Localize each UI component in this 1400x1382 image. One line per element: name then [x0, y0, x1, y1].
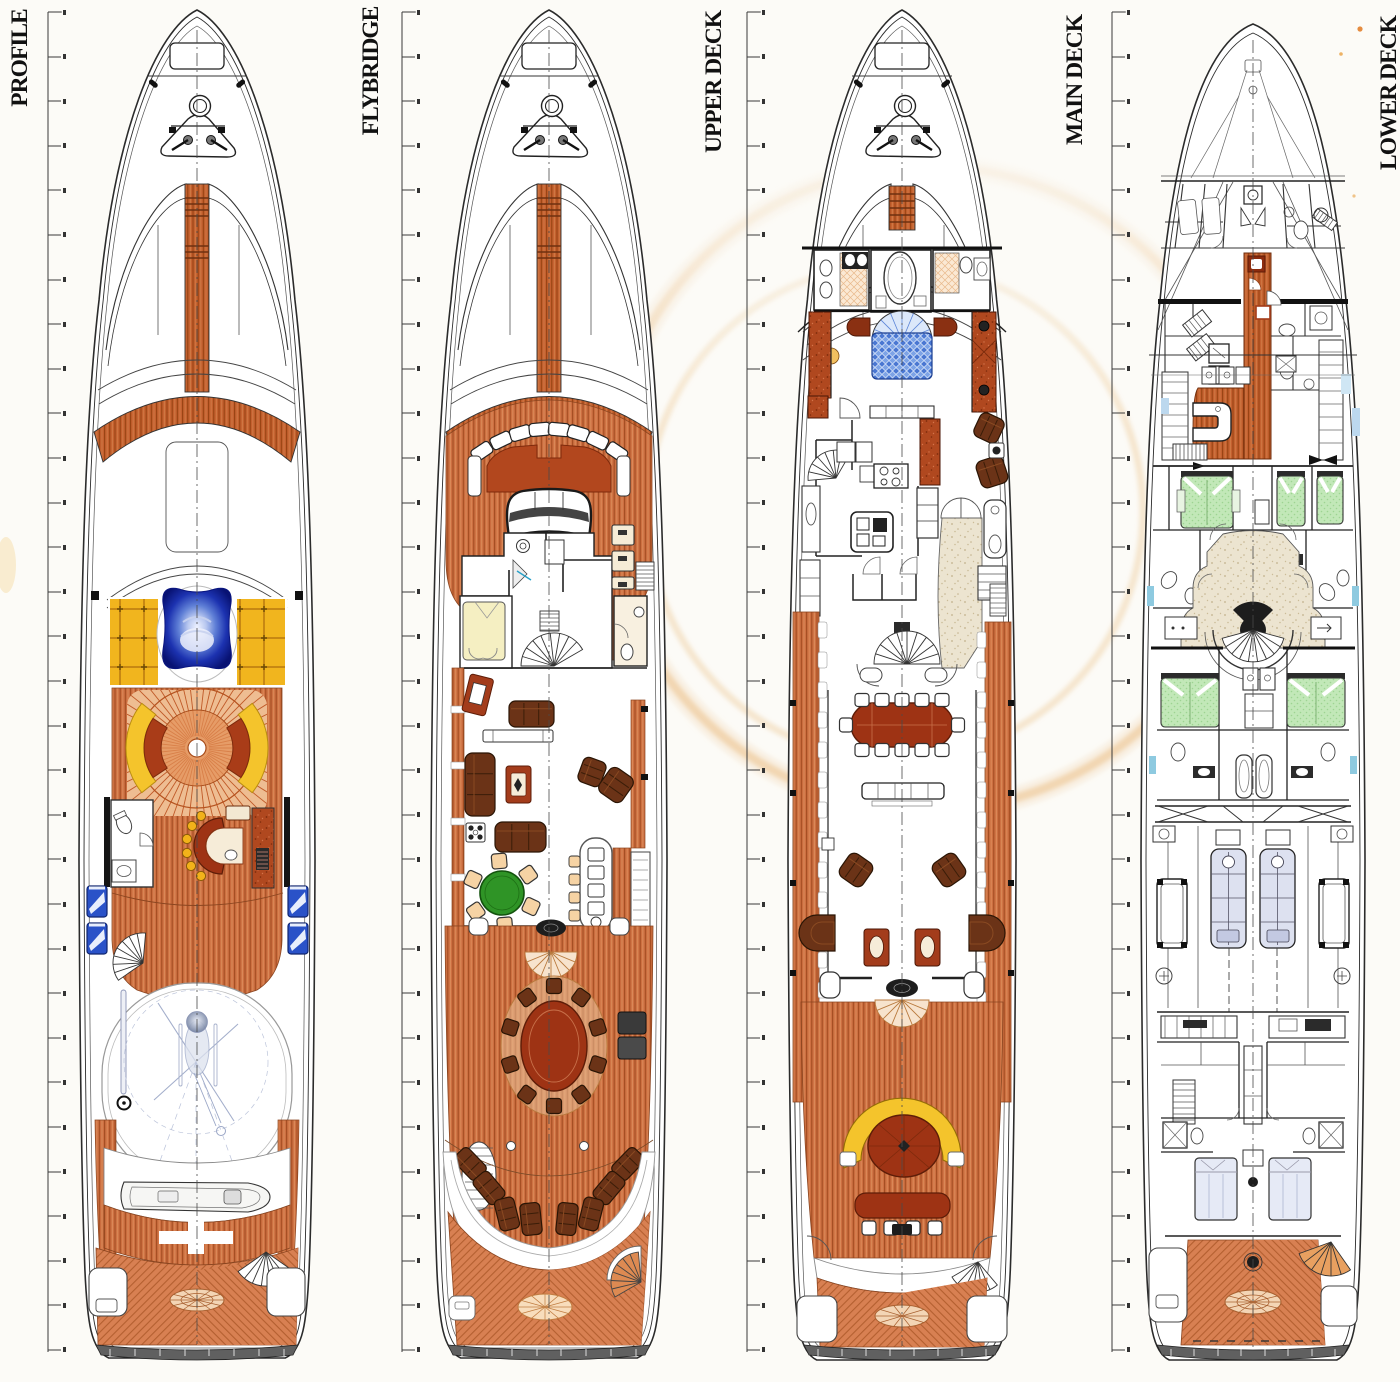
- svg-text:FLYBRIDGE: FLYBRIDGE: [358, 6, 384, 135]
- svg-text:LOWER DECK: LOWER DECK: [1376, 14, 1400, 170]
- svg-text:PROFILE: PROFILE: [7, 9, 33, 107]
- svg-text:UPPER DECK: UPPER DECK: [701, 9, 727, 153]
- svg-text:MAIN DECK: MAIN DECK: [1062, 13, 1088, 145]
